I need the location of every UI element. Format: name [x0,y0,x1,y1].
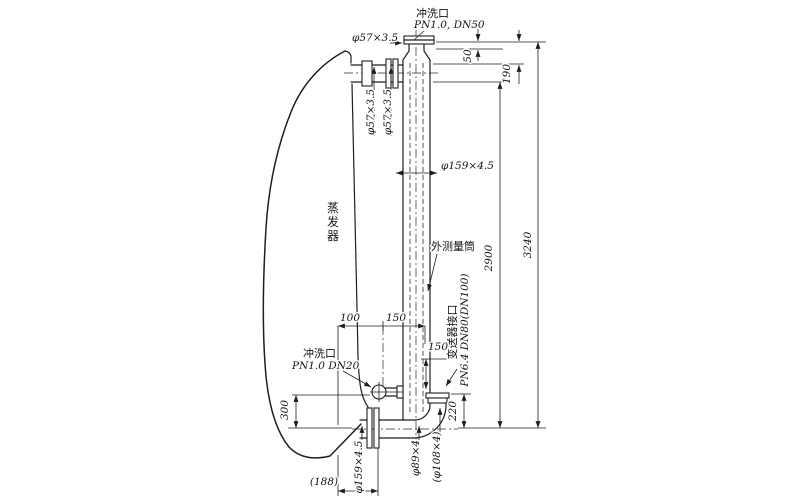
leader-bottom-flush-port [343,371,371,387]
dim-150-branch: 150 [428,341,448,353]
dim-3240: 3240 [522,231,534,258]
dim-300: 300 [279,400,291,420]
piping-diagram: 冲洗口PN1.0, DN50φ57×3.5φ57×3.5φ57×3.5φ159×… [0,0,800,500]
inner-tube-hidden-lines [410,63,423,414]
evaporator-outline [263,51,368,458]
riser-pipe-spec-1: φ57×3.5 [365,89,377,136]
bottom-flush-port-name: 冲洗口 [303,346,336,360]
dim-150-horizontal: 150 [386,312,406,324]
dim-2900: 2900 [483,244,495,272]
elbow-inner-arc [415,403,430,420]
bottom-flange-plate-1 [367,408,372,448]
top-flush-port-name: 冲洗口 [416,6,449,20]
measuring-cylinder [403,36,434,420]
dim-220: 220 [447,401,459,422]
upper-branch [351,59,403,88]
dim-190: 190 [501,64,513,84]
top-neck-right [424,44,430,60]
branch-valve-body [362,61,372,86]
bottom-pipe-spec: φ159×4.5 [353,440,365,493]
cylinder-pipe-spec: φ159×4.5 [441,160,494,172]
leader-transmitter-port [446,369,457,386]
top-neck-left [403,44,409,60]
transmitter-port-spec: PN6.4 DN80(DN100) [459,273,471,387]
transmitter-flange-plate-2 [428,398,447,403]
bottom-flush-valve [370,382,403,402]
elbow-pipe-spec-alt: (φ108×4) [431,431,443,482]
dim-50: 50 [462,49,474,63]
leader-lines [343,31,457,440]
evaporator-right-wall-top [345,51,351,63]
branch-flange-plate-1 [386,59,391,88]
leader-outer-cylinder [428,254,437,291]
riser-pipe-spec-2: φ57×3.5 [382,89,394,136]
dimension-lines [296,29,538,491]
bottom-flush-port-spec: PN1.0 DN20 [291,360,360,372]
branch-flange-plate-2 [393,59,398,88]
top-pipe-spec: φ57×3.5 [352,32,399,44]
evaporator-left-shell [263,51,361,458]
extension-lines [288,42,546,496]
dim-188: (188) [310,476,338,488]
dim-100: 100 [340,312,360,324]
top-flush-port-spec: PN1.0, DN50 [413,19,485,31]
outer-cylinder-label: 外测量筒 [431,239,475,253]
evaporator-label: 蒸发器 [327,201,339,243]
elbow-pipe-spec: φ89×4 [410,440,422,476]
drawing-page: 冲洗口PN1.0, DN50φ57×3.5φ57×3.5φ57×3.5φ159×… [0,0,800,500]
bottom-flange-plate-2 [374,408,379,448]
transmitter-flange-plate-1 [426,393,449,398]
